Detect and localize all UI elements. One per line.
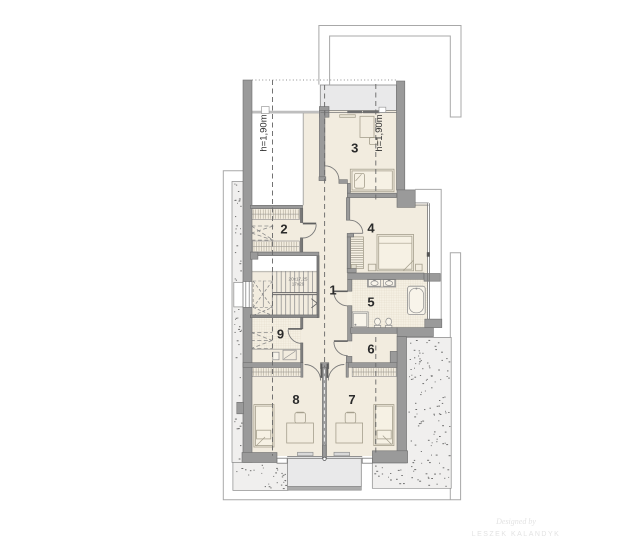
svg-text:2: 2: [280, 222, 287, 237]
svg-text:7: 7: [348, 392, 355, 407]
svg-text:4: 4: [367, 221, 375, 236]
svg-text:LESZEK KALANDYK: LESZEK KALANDYK: [472, 531, 561, 538]
svg-text:17x29: 17x29: [292, 282, 305, 287]
svg-text:3: 3: [351, 141, 358, 156]
svg-text:1: 1: [329, 283, 336, 298]
svg-text:9: 9: [277, 327, 284, 342]
svg-text:h=1,90m: h=1,90m: [374, 114, 385, 151]
svg-text:6: 6: [367, 342, 374, 357]
svg-text:8: 8: [292, 392, 299, 407]
svg-text:Designed by: Designed by: [495, 517, 536, 526]
svg-text:5: 5: [367, 295, 374, 310]
svg-text:h=1,90m: h=1,90m: [259, 114, 270, 151]
